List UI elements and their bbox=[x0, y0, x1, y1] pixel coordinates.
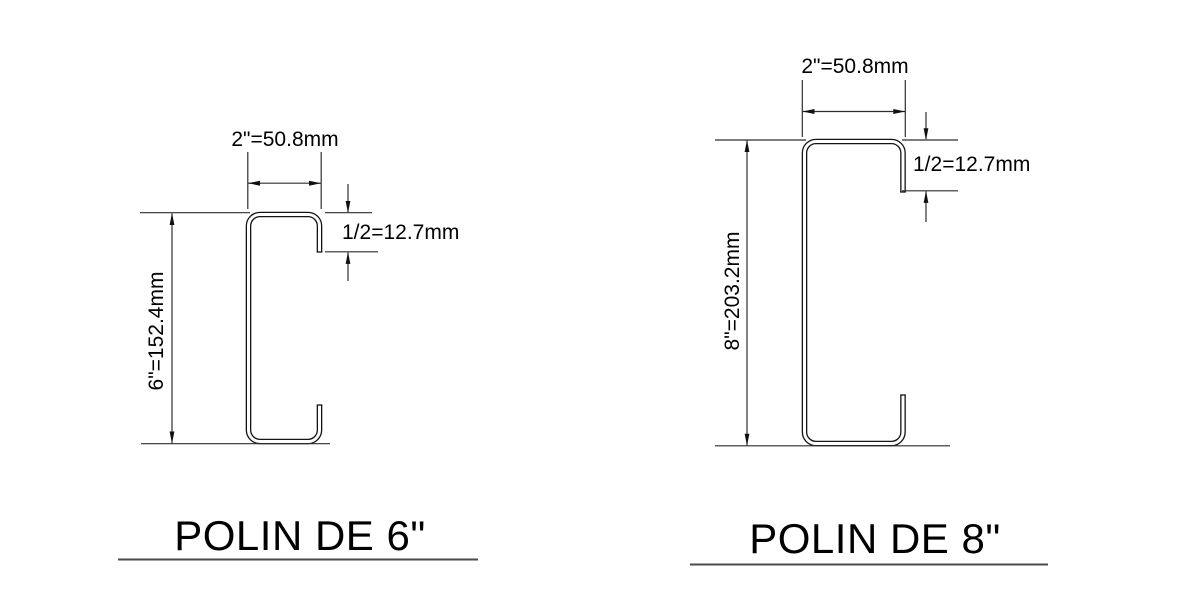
polin-6-lip-dim-label: 1/2=12.7mm bbox=[342, 221, 459, 244]
polin-6-lip-arrow-up-icon bbox=[346, 252, 351, 264]
polin-8-lip-arrow-down-icon bbox=[924, 128, 929, 140]
polin-8-height-arrow-top-icon bbox=[745, 140, 750, 152]
polin-6-height-dim-label: 6"=152.4mm bbox=[145, 272, 168, 391]
polin-6-title: POLIN DE 6" bbox=[174, 512, 426, 559]
polin-8-height-dim-label: 8"=203.2mm bbox=[721, 232, 744, 351]
polin-6-dimensions bbox=[140, 152, 378, 444]
polin-6-profile-inner-gap bbox=[249, 215, 320, 442]
polin-6-lip-end-caps bbox=[317, 252, 323, 405]
polin-6-figure: 2"=50.8mm 6"=152.4mm 1/2=12.7mm POLIN DE… bbox=[118, 128, 478, 560]
polin-8-dimensions bbox=[715, 80, 958, 446]
polin-6-profile-outline bbox=[249, 215, 320, 442]
polin-8-profile-outline bbox=[805, 142, 904, 444]
polin-8-lip-arrow-up-icon bbox=[924, 191, 929, 203]
polin-8-lip-end-caps bbox=[900, 192, 906, 395]
polin-6-height-arrow-top-icon bbox=[170, 213, 175, 225]
polin-8-profile bbox=[805, 142, 904, 444]
polin-6-arrowheads bbox=[170, 181, 351, 444]
polin-8-width-arrow-left-icon bbox=[803, 109, 815, 114]
polin-6-lip-arrow-down-icon bbox=[346, 201, 351, 213]
polin-8-title: POLIN DE 8" bbox=[749, 515, 1001, 562]
polin-6-width-dim-label: 2"=50.8mm bbox=[231, 128, 338, 151]
polin-8-profile-inner-gap bbox=[805, 142, 904, 444]
polin-8-width-dim-label: 2"=50.8mm bbox=[801, 55, 908, 78]
polin-6-height-arrow-bottom-icon bbox=[170, 432, 175, 444]
drawing-sheet: 2"=50.8mm 6"=152.4mm 1/2=12.7mm POLIN DE… bbox=[0, 0, 1187, 597]
polin-6-profile bbox=[249, 215, 320, 442]
technical-drawing-canvas: 2"=50.8mm 6"=152.4mm 1/2=12.7mm POLIN DE… bbox=[0, 0, 1187, 597]
polin-8-lip-dim-label: 1/2=12.7mm bbox=[913, 153, 1030, 176]
polin-6-width-arrow-left-icon bbox=[248, 181, 260, 186]
polin-8-width-arrow-right-icon bbox=[893, 109, 905, 114]
polin-8-height-arrow-bottom-icon bbox=[745, 434, 750, 446]
polin-8-figure: 2"=50.8mm 8"=203.2mm 1/2=12.7mm POLIN DE… bbox=[690, 55, 1048, 565]
polin-6-width-arrow-right-icon bbox=[309, 181, 321, 186]
